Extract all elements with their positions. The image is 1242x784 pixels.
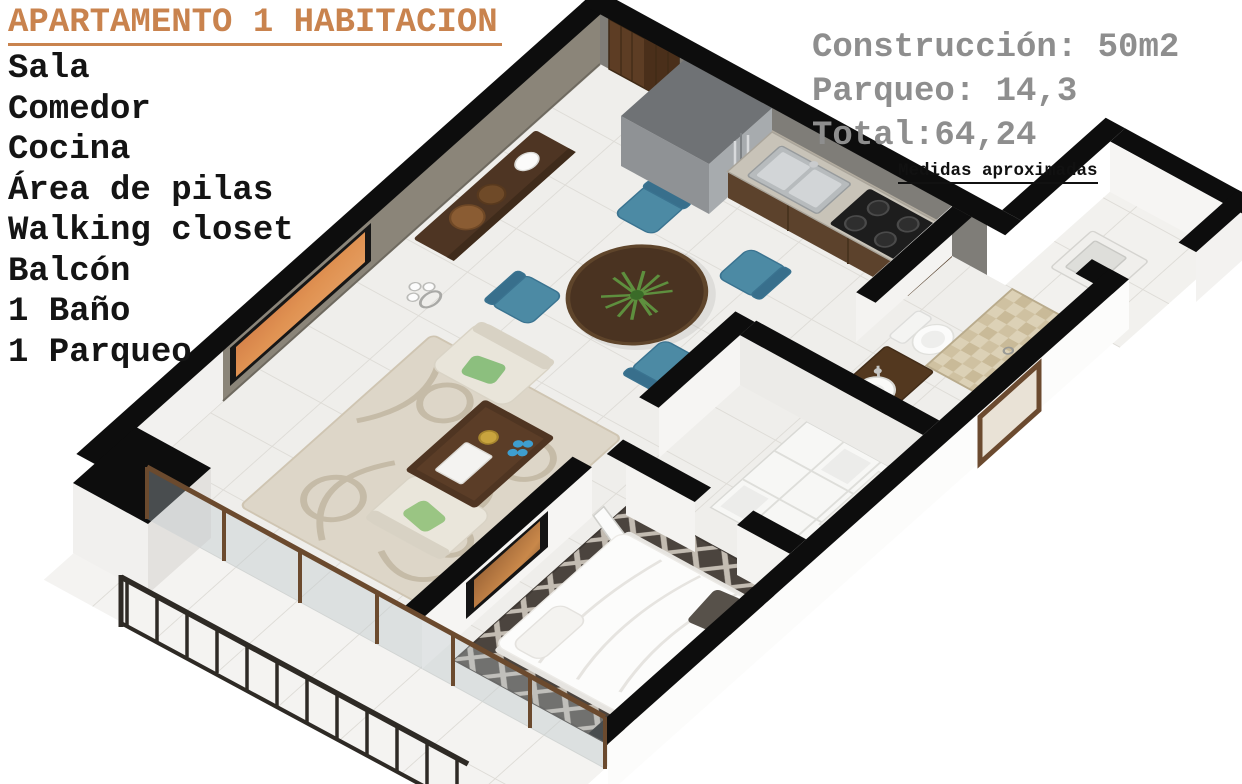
room-list-item: Balcón bbox=[8, 252, 294, 293]
room-list: Sala Comedor Cocina Área de pilas Walkin… bbox=[8, 49, 294, 373]
approximate-measures-note: Medidas aproximadas bbox=[898, 161, 1098, 184]
room-list-item: Comedor bbox=[8, 90, 294, 131]
room-list-item: 1 Parqueo bbox=[8, 333, 294, 374]
page-title: APARTAMENTO 1 HABITACION bbox=[8, 4, 502, 46]
room-list-item: Área de pilas bbox=[8, 171, 294, 212]
parking-area: Parqueo: 14,3 bbox=[812, 70, 1179, 114]
room-list-item: 1 Baño bbox=[8, 292, 294, 333]
room-list-item: Walking closet bbox=[8, 211, 294, 252]
total-area: Total:64,24 bbox=[812, 114, 1179, 158]
apartment-flyer: APARTAMENTO 1 HABITACION Sala Comedor Co… bbox=[0, 0, 1242, 784]
room-list-item: Cocina bbox=[8, 130, 294, 171]
measurements-block: Construcción: 50m2 Parqueo: 14,3 Total:6… bbox=[812, 26, 1179, 184]
room-list-item: Sala bbox=[8, 49, 294, 90]
construction-area: Construcción: 50m2 bbox=[812, 26, 1179, 70]
